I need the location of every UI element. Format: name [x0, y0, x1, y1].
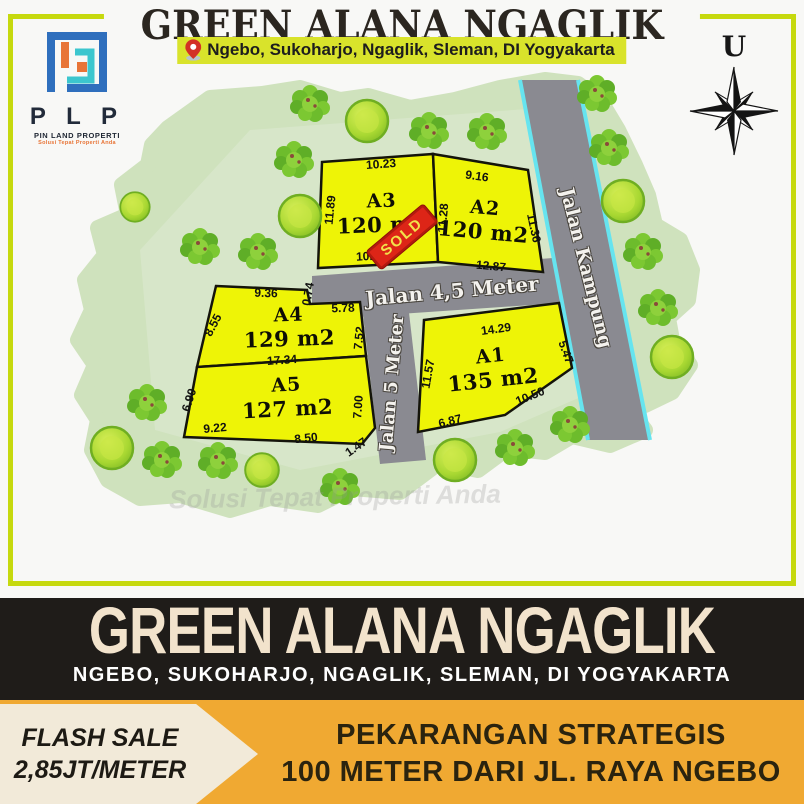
- measure-a3-top: 10.23: [366, 156, 397, 172]
- flash-sale-flag: FLASH SALE 2,85JT/METER: [0, 704, 258, 804]
- footer-tagline: PEKARANGAN STRATEGIS 100 METER DARI JL. …: [258, 704, 804, 804]
- map-section: Solusi Tepat Properti Anda GREEN ALANA N…: [0, 0, 804, 598]
- plot-a4-label: A4 129 m2: [243, 303, 336, 352]
- title-banner: GREEN ALANA NGAGLIK NGEBO, SUKOHARJO, NG…: [0, 598, 804, 700]
- logo-name: PIN LAND PROPERTI: [22, 131, 132, 140]
- location-badge: Ngebo, Sukoharjo, Ngaglik, Sleman, DI Yo…: [177, 37, 626, 64]
- measure-a4-bottom: 17.34: [267, 352, 298, 368]
- plot-a4-area: 129 m2: [243, 325, 335, 352]
- compass: U: [688, 30, 780, 160]
- location-text: Ngebo, Sukoharjo, Ngaglik, Sleman, DI Yo…: [207, 40, 614, 60]
- flash-sale-label: FLASH SALE: [22, 722, 179, 755]
- logo-tagline: Solusi Tepat Properti Anda: [22, 140, 132, 146]
- measure-a5-bottom-left: 9.22: [203, 420, 227, 436]
- watermark: Solusi Tepat Properti Anda: [169, 479, 501, 516]
- plot-a5-area: 127 m2: [242, 394, 334, 423]
- footer-line2: 100 METER DARI JL. RAYA NGEBO: [281, 756, 781, 789]
- plot-a5-label: A5 127 m2: [240, 373, 333, 424]
- compass-rose-icon: [688, 63, 780, 159]
- measure-a2-bottom: 12.87: [475, 258, 506, 275]
- logo-letters: P L P: [22, 103, 132, 131]
- poster: Solusi Tepat Properti Anda GREEN ALANA N…: [0, 0, 804, 804]
- footer-line1: PEKARANGAN STRATEGIS: [336, 719, 726, 752]
- measure-a5-bottom: 8.50: [294, 430, 319, 446]
- map-pin-icon: [185, 39, 201, 61]
- plot-a2-label: A2 120 m2: [437, 194, 532, 248]
- company-logo: P L P PIN LAND PROPERTI Solusi Tepat Pro…: [22, 28, 132, 150]
- measure-a5-right: 7.00: [350, 395, 366, 419]
- banner-subtitle: NGEBO, SUKOHARJO, NGAGLIK, SLEMAN, DI YO…: [0, 664, 804, 687]
- banner-title: GREEN ALANA NGAGLIK: [89, 598, 715, 668]
- measure-a4-top2: 5.78: [331, 301, 355, 316]
- compass-north-label: U: [688, 30, 780, 63]
- footer-bar: FLASH SALE 2,85JT/METER PEKARANGAN STRAT…: [0, 700, 804, 804]
- measure-a2-a3-shared: 11.28: [435, 203, 452, 233]
- measure-a4-right: 7.52: [351, 326, 367, 351]
- flash-sale-price: 2,85JT/METER: [14, 754, 186, 787]
- plp-logo-icon: [43, 28, 111, 96]
- measure-a4-top: 9.36: [254, 286, 278, 301]
- plot-a1-label: A1 135 m2: [444, 341, 539, 396]
